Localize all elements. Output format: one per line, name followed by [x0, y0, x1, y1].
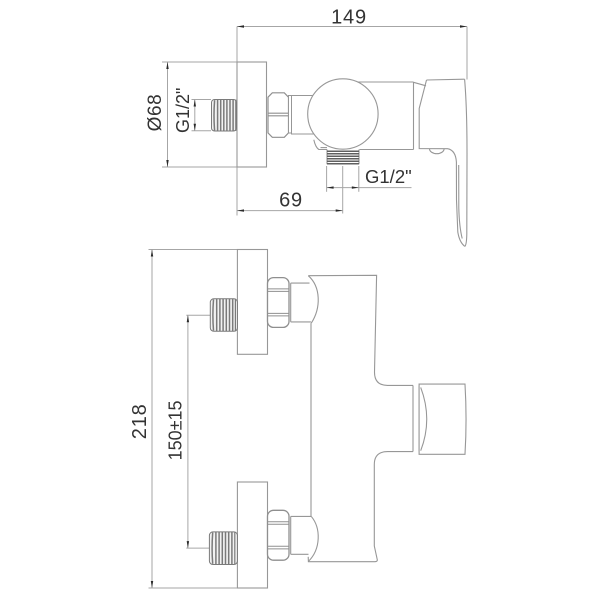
svg-text:69: 69: [279, 190, 303, 212]
svg-text:G1/2": G1/2": [365, 166, 412, 187]
svg-text:149: 149: [331, 7, 367, 29]
svg-text:G1/2": G1/2": [173, 88, 193, 133]
svg-text:150±15: 150±15: [166, 400, 186, 460]
svg-text:Ø68: Ø68: [145, 94, 166, 132]
svg-text:218: 218: [129, 403, 151, 439]
